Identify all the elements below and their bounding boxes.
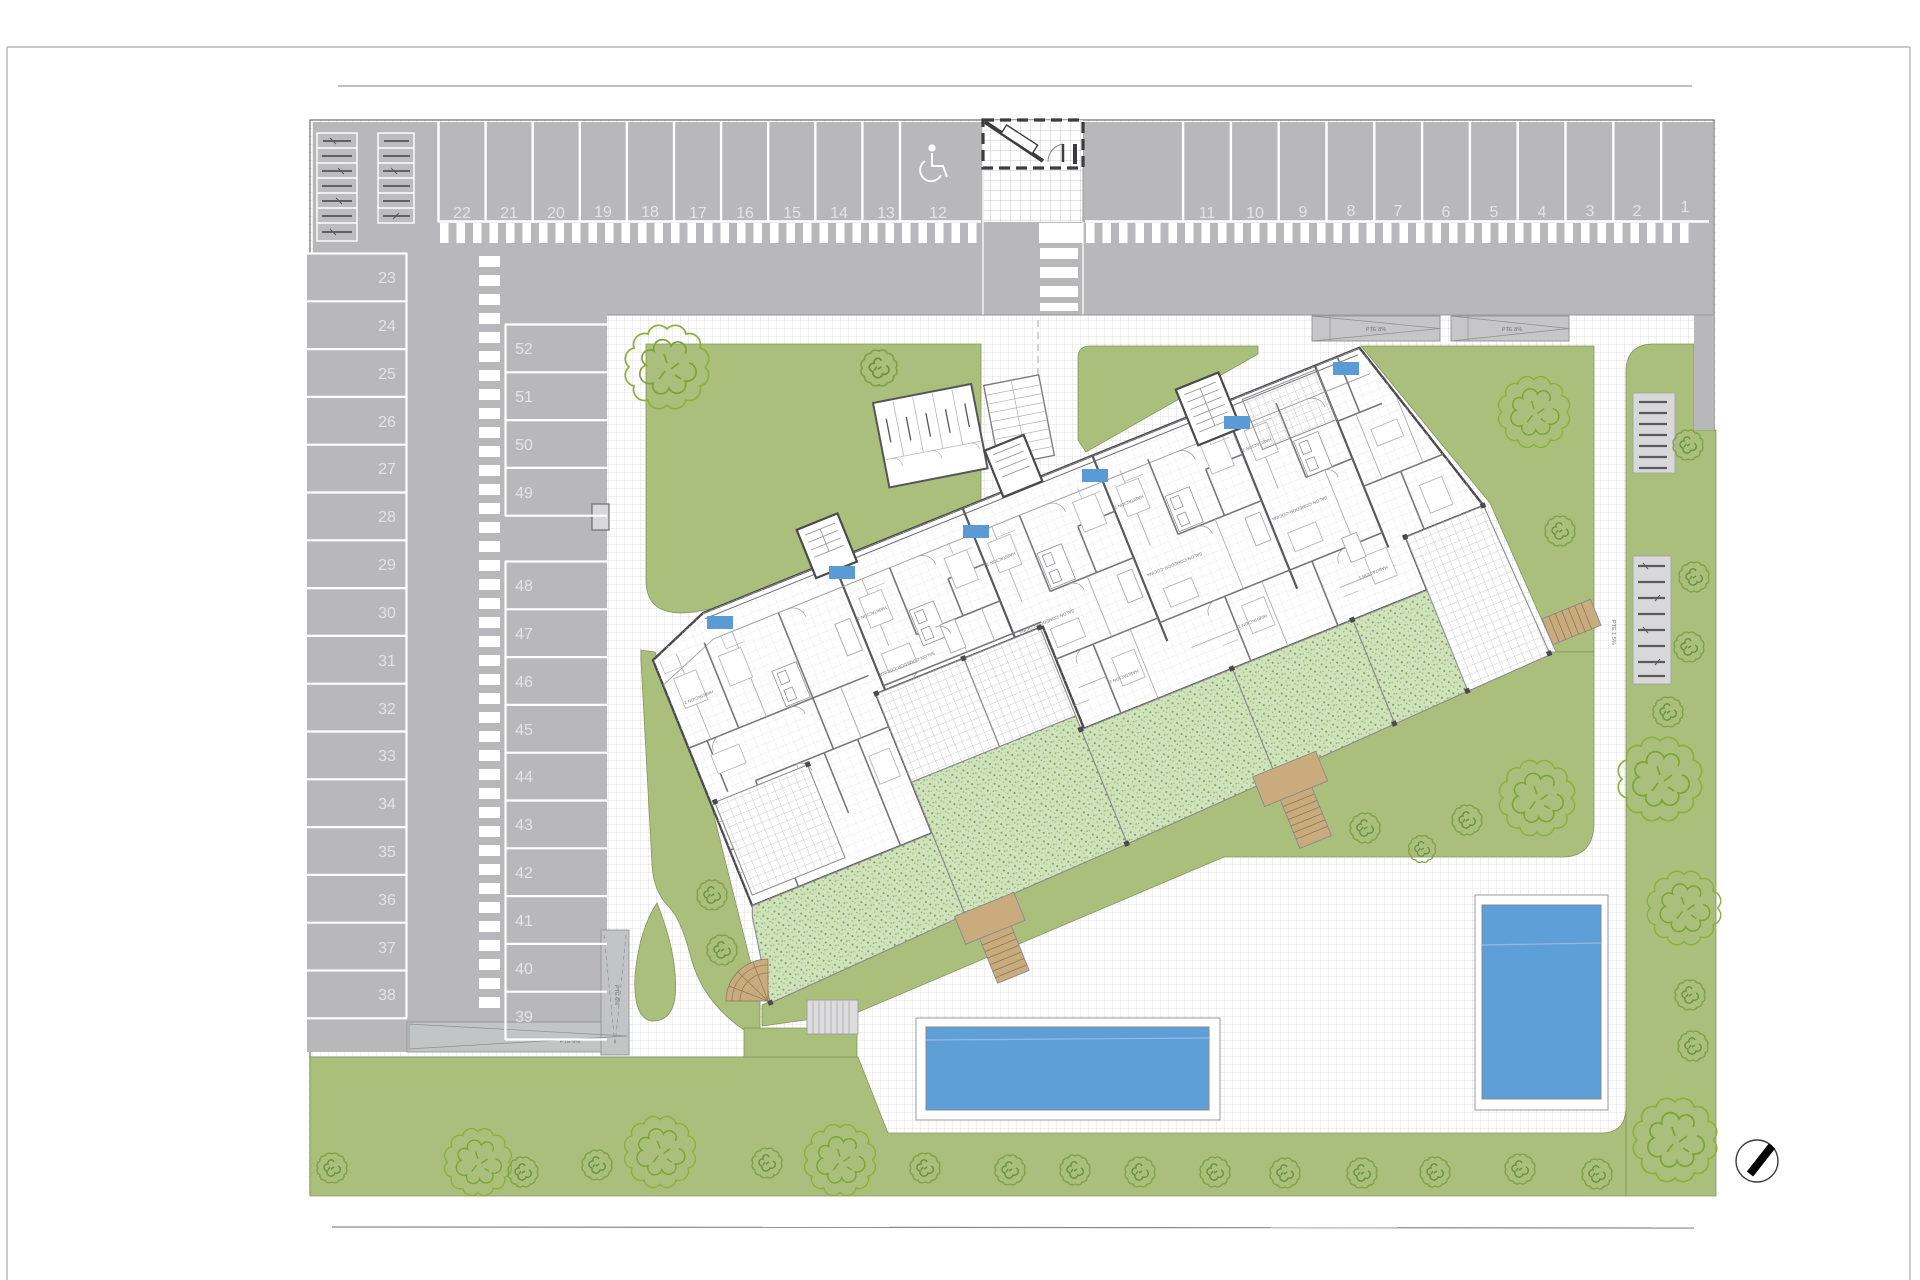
- svg-text:7: 7: [1394, 203, 1403, 220]
- svg-text:18: 18: [641, 204, 659, 221]
- svg-text:50: 50: [515, 437, 533, 454]
- svg-text:5: 5: [1490, 204, 1499, 221]
- svg-text:42: 42: [515, 865, 533, 882]
- svg-text:24: 24: [378, 318, 396, 335]
- svg-text:49: 49: [515, 485, 533, 502]
- svg-text:2: 2: [1633, 203, 1642, 220]
- svg-text:45: 45: [515, 722, 533, 739]
- svg-text:6: 6: [1442, 204, 1451, 221]
- svg-text:10: 10: [1246, 205, 1264, 222]
- svg-text:41: 41: [515, 913, 533, 930]
- svg-text:52: 52: [515, 341, 533, 358]
- svg-text:31: 31: [378, 653, 396, 670]
- svg-text:PTE 1.5%: PTE 1.5%: [1610, 620, 1616, 645]
- svg-text:34: 34: [378, 796, 396, 813]
- svg-text:12: 12: [929, 205, 947, 222]
- svg-text:11: 11: [1199, 205, 1216, 222]
- svg-text:22: 22: [453, 205, 471, 222]
- svg-text:25: 25: [378, 366, 396, 383]
- svg-text:46: 46: [515, 674, 533, 691]
- svg-text:PTE 6%: PTE 6%: [613, 985, 619, 1005]
- svg-text:40: 40: [515, 961, 533, 978]
- svg-text:8: 8: [1347, 203, 1356, 220]
- svg-text:32: 32: [378, 701, 396, 718]
- svg-text:1: 1: [1681, 199, 1690, 216]
- svg-text:17: 17: [689, 205, 707, 222]
- svg-text:PTE 8%: PTE 8%: [1366, 327, 1386, 333]
- svg-text:28: 28: [378, 509, 396, 526]
- svg-text:30: 30: [378, 605, 396, 622]
- svg-text:16: 16: [736, 205, 754, 222]
- svg-text:48: 48: [515, 578, 533, 595]
- svg-text:13: 13: [877, 205, 895, 222]
- svg-text:29: 29: [378, 557, 396, 574]
- svg-text:37: 37: [378, 940, 396, 957]
- svg-text:44: 44: [515, 769, 533, 786]
- svg-text:39: 39: [515, 1009, 533, 1026]
- svg-text:20: 20: [547, 205, 565, 222]
- svg-text:35: 35: [378, 844, 396, 861]
- svg-text:36: 36: [378, 892, 396, 909]
- svg-text:23: 23: [378, 270, 396, 287]
- svg-text:27: 27: [378, 461, 396, 478]
- svg-text:4: 4: [1538, 204, 1547, 221]
- svg-text:47: 47: [515, 626, 533, 643]
- svg-text:26: 26: [378, 414, 396, 431]
- svg-text:51: 51: [515, 389, 533, 406]
- svg-text:15: 15: [783, 205, 801, 222]
- svg-text:38: 38: [378, 987, 396, 1004]
- svg-text:33: 33: [378, 748, 396, 765]
- svg-text:3: 3: [1586, 203, 1595, 220]
- svg-text:43: 43: [515, 817, 533, 834]
- svg-text:9: 9: [1299, 204, 1308, 221]
- svg-text:21: 21: [500, 205, 518, 222]
- svg-text:19: 19: [594, 204, 612, 221]
- svg-text:14: 14: [830, 205, 848, 222]
- svg-text:PTE 8%: PTE 8%: [1502, 327, 1522, 333]
